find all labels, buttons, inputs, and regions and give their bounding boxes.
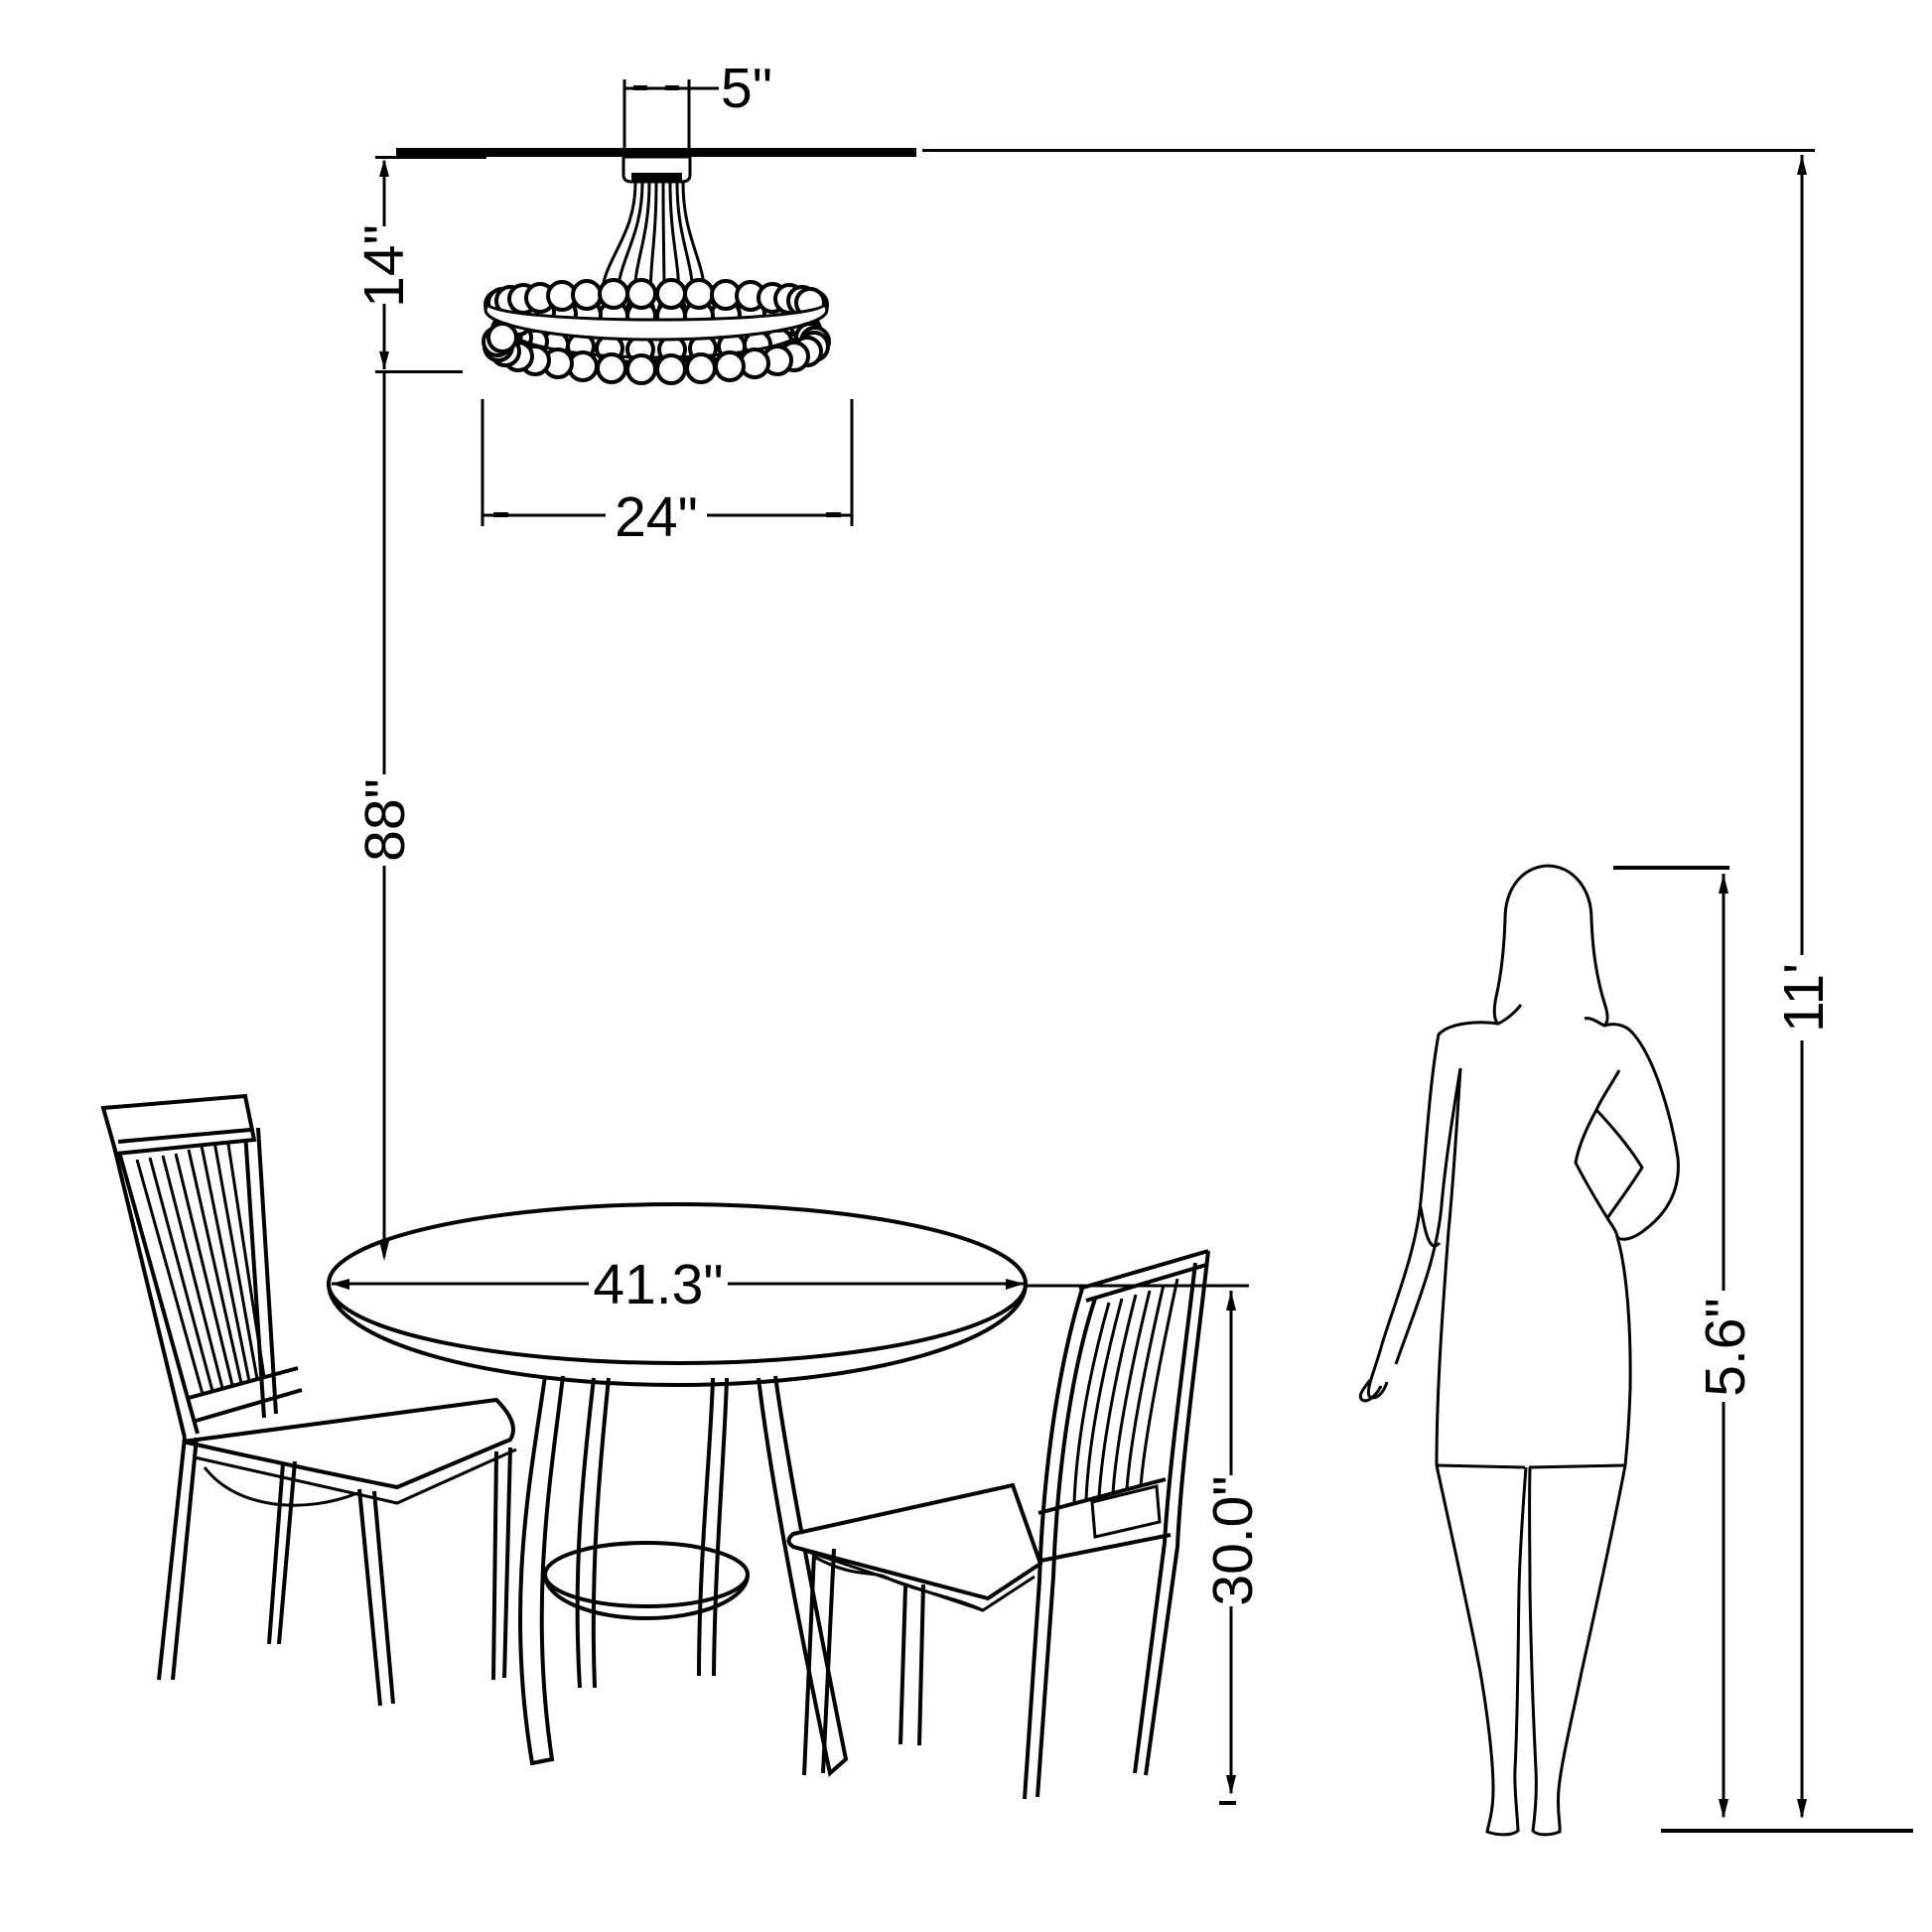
svg-text:14": 14": [352, 224, 416, 308]
svg-text:41.3": 41.3": [593, 1253, 723, 1316]
svg-text:5.6": 5.6": [1694, 1298, 1757, 1396]
svg-text:24": 24": [615, 485, 698, 549]
svg-text:5": 5": [721, 57, 772, 120]
svg-text:11': 11': [1772, 963, 1836, 1033]
svg-text:88": 88": [353, 778, 417, 862]
svg-text:30.0": 30.0": [1201, 1475, 1265, 1605]
